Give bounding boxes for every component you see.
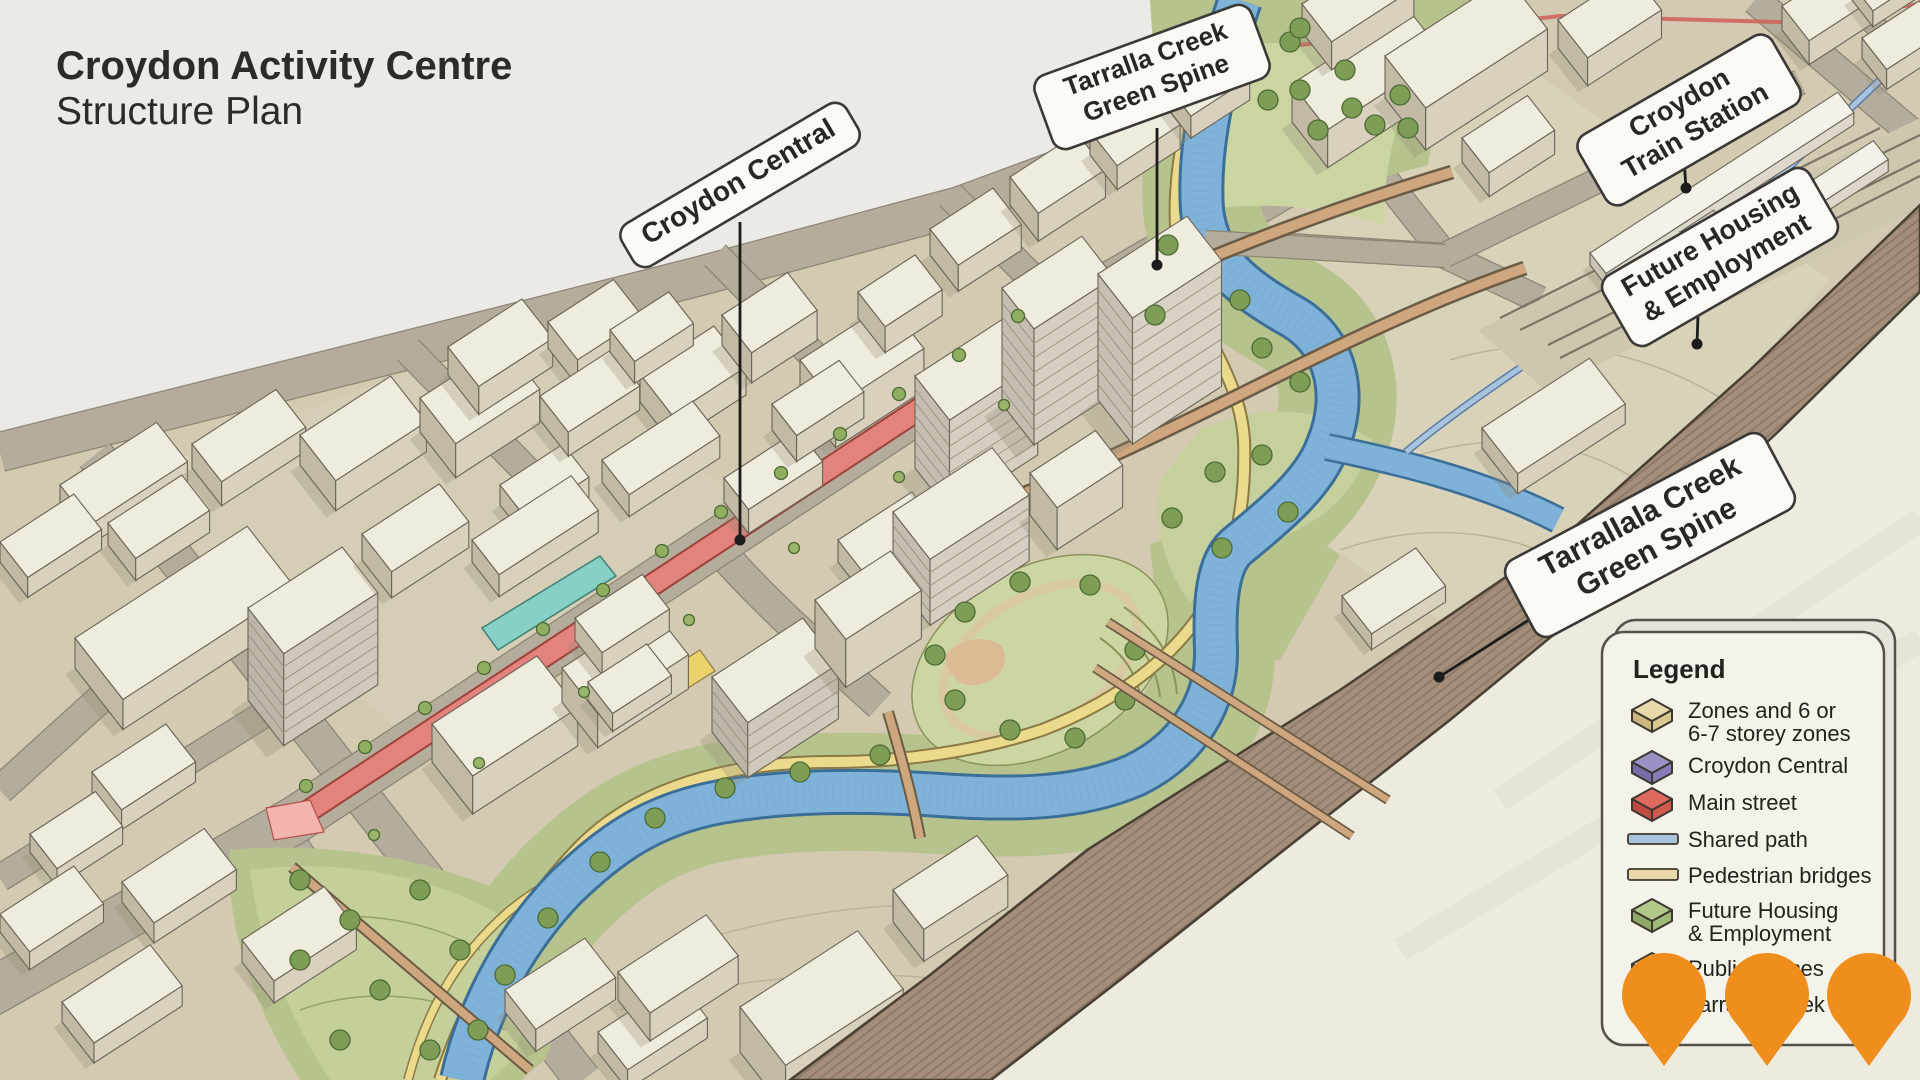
svg-text:Pedestrian bridges: Pedestrian bridges	[1688, 863, 1871, 888]
svg-text:Zones and 6 or: Zones and 6 or	[1688, 698, 1836, 723]
svg-text:& Employment: & Employment	[1688, 921, 1831, 946]
svg-text:Legend: Legend	[1633, 654, 1725, 684]
svg-text:Croydon Activity Centre: Croydon Activity Centre	[56, 44, 512, 88]
svg-text:6-7 storey zones: 6-7 storey zones	[1688, 721, 1851, 746]
svg-text:Shared path: Shared path	[1688, 827, 1808, 852]
svg-text:Future Housing: Future Housing	[1688, 898, 1838, 923]
svg-text:Main street: Main street	[1688, 790, 1797, 815]
svg-text:Structure Plan: Structure Plan	[56, 90, 303, 133]
svg-text:Croydon Central: Croydon Central	[1688, 753, 1848, 778]
